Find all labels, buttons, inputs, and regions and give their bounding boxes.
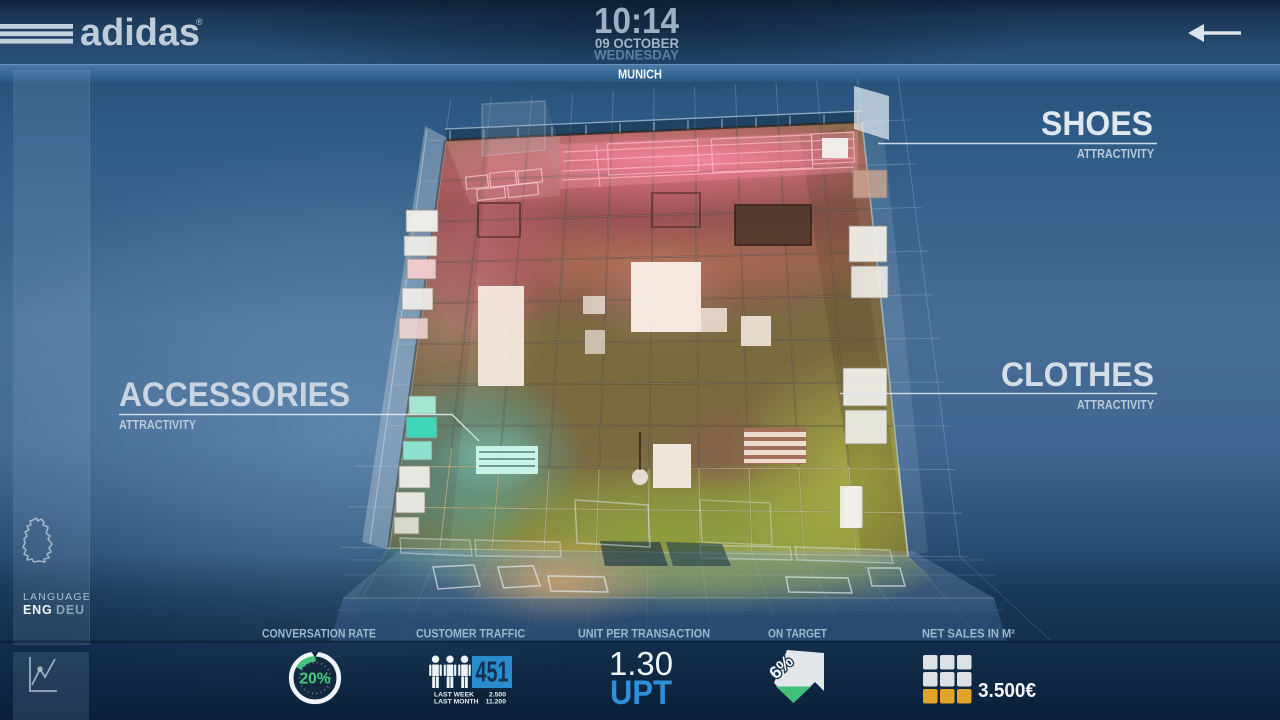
svg-text:ENG: ENG <box>23 603 53 617</box>
svg-text:ATTRACTIVITY: ATTRACTIVITY <box>1077 398 1155 412</box>
svg-text:LANGUAGE: LANGUAGE <box>23 591 91 603</box>
svg-text:CUSTOMER TRAFFIC: CUSTOMER TRAFFIC <box>416 629 525 641</box>
svg-text:CLOTHES: CLOTHES <box>1001 356 1154 394</box>
svg-text:DEU: DEU <box>56 603 85 617</box>
svg-text:ATTRACTIVITY: ATTRACTIVITY <box>1077 147 1155 161</box>
svg-text:WEDNESDAY: WEDNESDAY <box>594 47 680 63</box>
svg-text:SHOES: SHOES <box>1041 105 1153 143</box>
svg-text:UPT: UPT <box>610 674 672 712</box>
svg-text:MUNICH: MUNICH <box>618 67 662 82</box>
svg-text:NET SALES IN M²: NET SALES IN M² <box>922 629 1015 641</box>
svg-text:CONVERSATION RATE: CONVERSATION RATE <box>262 629 376 641</box>
svg-text:ON TARGET: ON TARGET <box>768 629 827 641</box>
svg-text:LAST WEEK: LAST WEEK <box>434 692 474 699</box>
svg-text:2.500: 2.500 <box>489 692 506 699</box>
svg-text:451: 451 <box>476 657 509 689</box>
svg-text:ATTRACTIVITY: ATTRACTIVITY <box>119 418 197 432</box>
svg-text:ACCESSORIES: ACCESSORIES <box>119 376 350 414</box>
svg-text:UNIT PER TRANSACTION: UNIT PER TRANSACTION <box>578 629 710 641</box>
svg-text:20%: 20% <box>299 671 330 688</box>
svg-text:adidas: adidas <box>80 12 200 54</box>
svg-text:LAST MONTH: LAST MONTH <box>434 699 479 706</box>
svg-text:3.500€: 3.500€ <box>978 680 1036 702</box>
svg-text:®: ® <box>196 17 203 27</box>
svg-text:11.200: 11.200 <box>486 699 507 706</box>
